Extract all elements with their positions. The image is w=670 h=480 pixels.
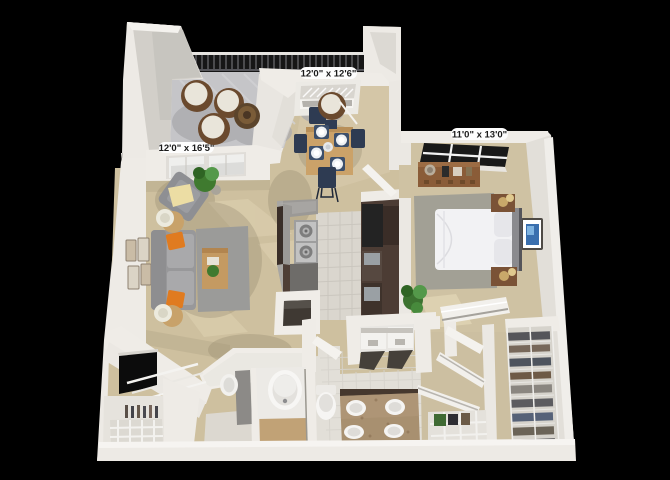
svg-text:12'0" x 16'5": 12'0" x 16'5"	[159, 143, 215, 154]
svg-text:12'0" x 12'6": 12'0" x 12'6"	[301, 69, 357, 80]
svg-text:11'0" x 13'0": 11'0" x 13'0"	[452, 130, 507, 141]
